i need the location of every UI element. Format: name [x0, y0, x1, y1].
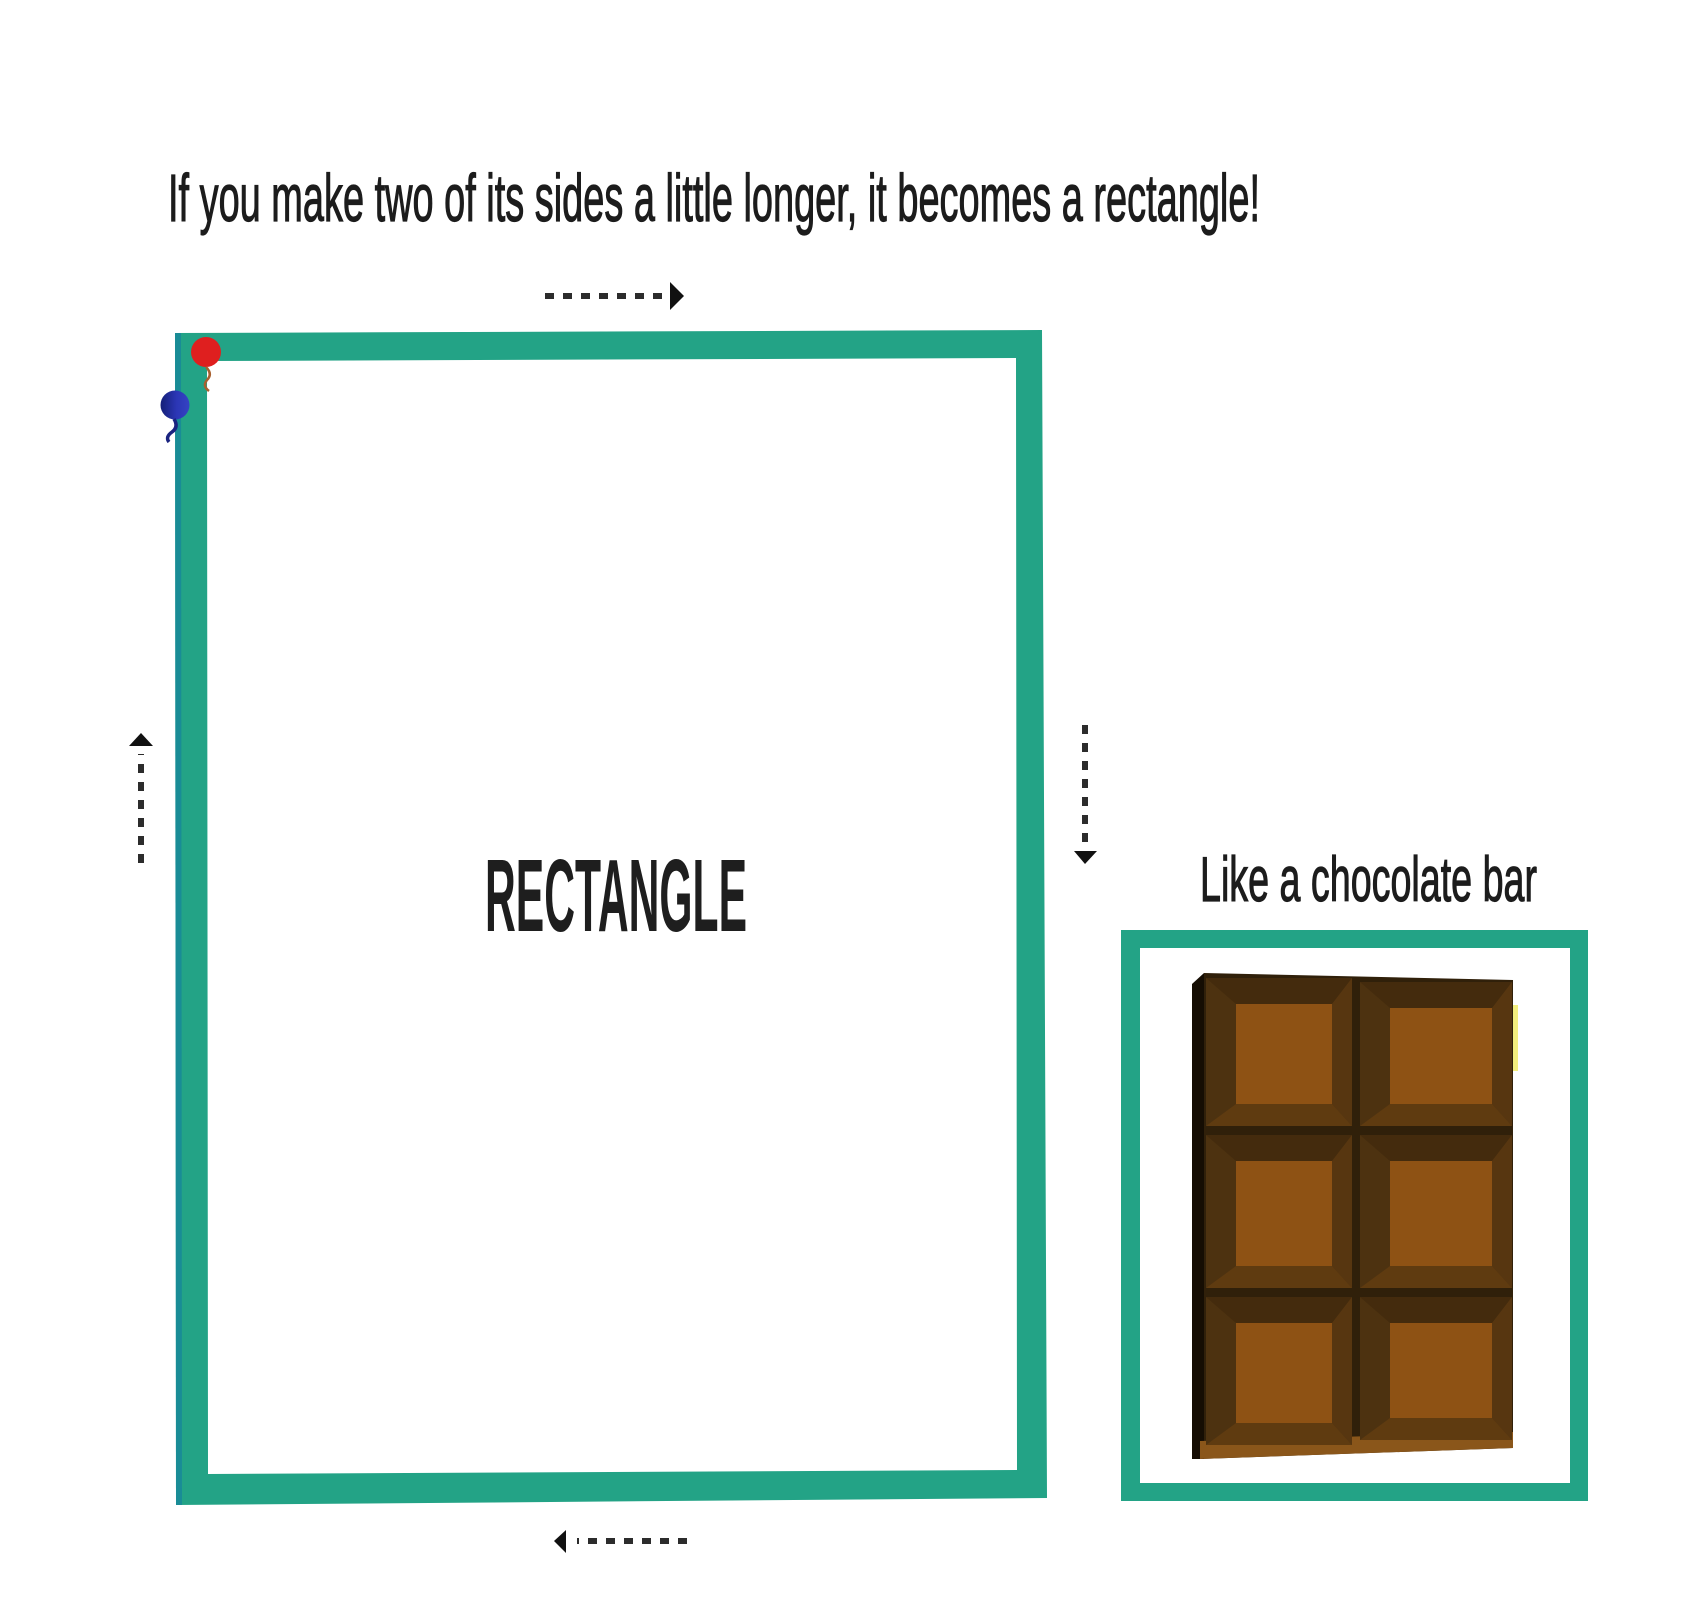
svg-text:RECTANGLE: RECTANGLE	[485, 838, 747, 953]
svg-text:Like a chocolate bar: Like a chocolate bar	[1200, 845, 1537, 915]
svg-text:If you make two of its sides a: If you make two of its sides a little lo…	[168, 161, 1260, 236]
